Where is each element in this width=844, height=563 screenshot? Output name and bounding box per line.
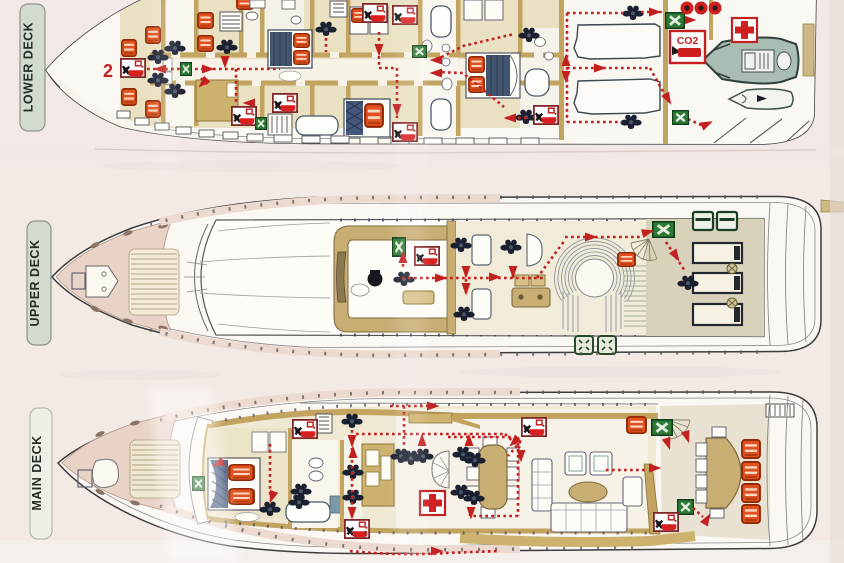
svg-text:2: 2 (103, 61, 113, 81)
svg-text:UPPER DECK: UPPER DECK (28, 240, 42, 327)
svg-text:LOWER DECK: LOWER DECK (22, 22, 36, 112)
svg-text:MAIN DECK: MAIN DECK (30, 435, 44, 510)
svg-text:CO2: CO2 (677, 35, 699, 47)
